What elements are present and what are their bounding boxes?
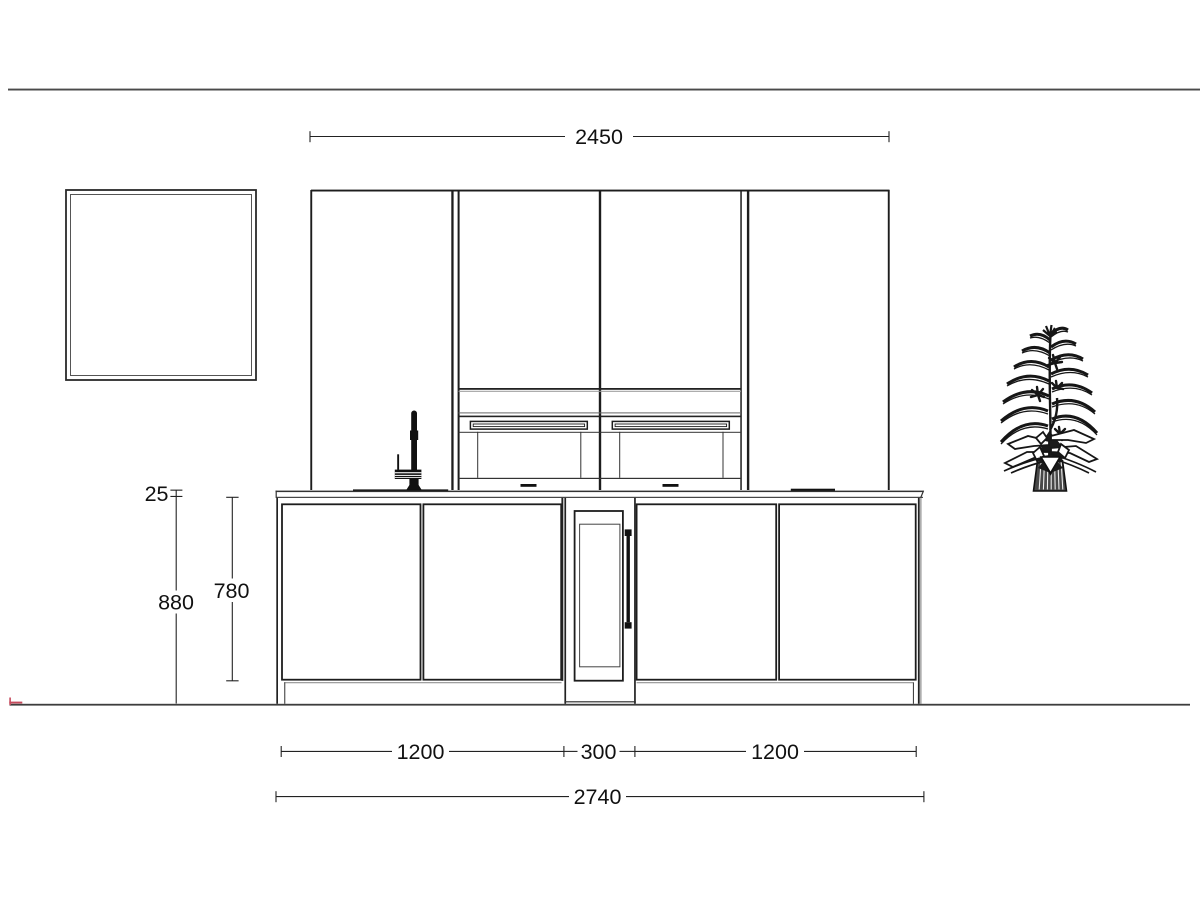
svg-text:1200: 1200 [751,740,799,764]
svg-text:2740: 2740 [574,785,622,809]
svg-text:300: 300 [581,740,617,764]
svg-text:1200: 1200 [397,740,445,764]
svg-text:2450: 2450 [575,125,623,149]
svg-text:780: 780 [214,579,250,603]
svg-text:25: 25 [145,482,169,506]
svg-text:880: 880 [158,591,194,615]
